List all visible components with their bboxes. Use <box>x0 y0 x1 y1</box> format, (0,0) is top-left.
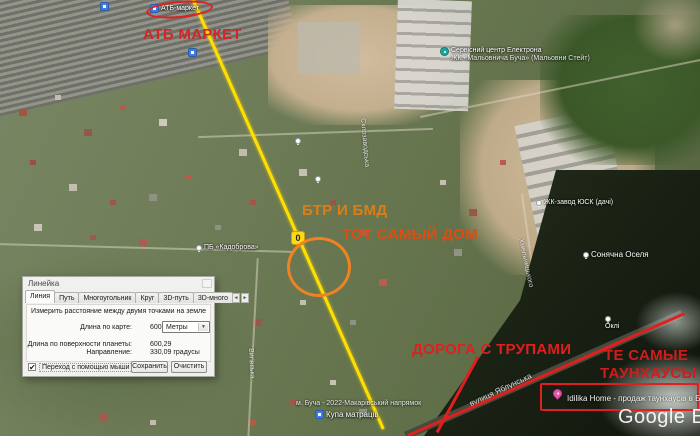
poi-label: Оклі <box>605 323 619 331</box>
tab-circle[interactable]: Круг <box>135 292 159 303</box>
ground-length-value: 600,29 <box>150 341 171 348</box>
shop-icon <box>315 410 324 419</box>
ground-length-label: Длина по поверхности планеты: <box>27 341 132 348</box>
poi-label: м. Буча - 2022-Макарівський напрямок <box>296 400 421 408</box>
map-pin-icon <box>315 176 321 182</box>
map-pin-icon <box>583 252 589 258</box>
poi-bucha-note: м. Буча - 2022-Макарівський напрямок <box>296 400 421 408</box>
poi-transit-station[interactable] <box>100 2 109 11</box>
idilika-placemark-label[interactable]: Idilika Home - продаж таунхаусів в Бучі <box>567 394 700 403</box>
annotation-atb-market: АТБ МАРКЕТ <box>143 26 242 43</box>
poi-label: ПБ «Кадоброва» <box>204 244 259 252</box>
google-earth-window: вулиця Яблунська Склозаводська Вигівська… <box>0 0 700 436</box>
mouse-nav-label[interactable]: Переход с помощью мыши <box>40 364 132 371</box>
tab-scroll-buttons: ◄ ► <box>232 293 249 303</box>
poi-label: ЖК-завод ЮСК (дачі) <box>544 199 613 207</box>
annotation-townhouses-line2: ТАУНХАУСЫ <box>600 365 696 382</box>
map-pin-icon <box>536 200 542 206</box>
heading-value: 330,09 градусы <box>150 349 200 356</box>
poi-pin[interactable] <box>315 176 321 182</box>
ruler-dialog-title: Линейка <box>28 279 59 288</box>
tab-3d-polygon[interactable]: 3D-много <box>193 292 233 303</box>
poi-okli[interactable]: Оклі <box>605 316 619 331</box>
map-pin-icon <box>605 316 611 322</box>
google-earth-watermark: Google Ea <box>618 406 700 429</box>
tab-path[interactable]: Путь <box>54 292 79 303</box>
poi-sonyachna-oselya[interactable]: Сонячна Оселя <box>583 251 649 259</box>
ruler-panel: Измерить расстояние между двумя точками … <box>26 304 211 362</box>
ruler-description: Измерить расстояние между двумя точками … <box>31 308 206 315</box>
save-button[interactable]: Сохранить <box>131 361 168 373</box>
tab-scroll-right-icon[interactable]: ► <box>241 293 249 303</box>
tab-scroll-left-icon[interactable]: ◄ <box>232 293 240 303</box>
heading-label: Направление: <box>27 349 132 356</box>
ruler-dialog: Линейка Линия Путь Многоугольник Круг 3D… <box>22 276 215 377</box>
field-area <box>635 0 700 60</box>
poi-transit-station-2[interactable] <box>188 48 197 57</box>
map-pin-icon <box>295 138 301 144</box>
transit-icon <box>188 48 197 57</box>
annotation-btr-bmd: БТР И БМД <box>302 202 387 219</box>
poi-mattresses[interactable]: Купа матраців <box>315 410 379 419</box>
annotation-townhouses-line1: ТЕ САМЫЕ <box>604 347 688 364</box>
poi-label: Сервісний центр Електрона <box>451 47 590 55</box>
poi-usk[interactable]: ЖК-завод ЮСК (дачі) <box>536 199 613 207</box>
poi-label: ЖК «Мальовнича Буча» (Мальовни Стейт) <box>451 55 590 63</box>
poi-label: Сонячна Оселя <box>591 251 649 259</box>
ruler-tab-bar: Линия Путь Многоугольник Круг 3D-путь 3D… <box>25 290 212 303</box>
tab-line[interactable]: Линия <box>25 290 55 303</box>
poi-pin[interactable] <box>295 138 301 144</box>
poi-kadobrova[interactable]: ПБ «Кадоброва» <box>196 244 259 252</box>
tab-polygon[interactable]: Многоугольник <box>78 292 136 303</box>
clear-button[interactable]: Очистить <box>171 361 207 373</box>
house-highlight-circle <box>287 237 351 297</box>
unit-selected-value: Метры <box>166 324 188 331</box>
poi-service-center[interactable]: Сервісний центр Електрона ЖК «Мальовнича… <box>440 47 590 63</box>
annotation-corpses-road: ДОРОГА С ТРУПАМИ <box>412 341 571 358</box>
close-button[interactable] <box>202 279 212 288</box>
service-icon <box>440 47 449 56</box>
map-pin-icon <box>196 245 202 251</box>
mouse-nav-checkbox[interactable]: ✔ <box>28 363 36 371</box>
tab-3d-path[interactable]: 3D-путь <box>158 292 193 303</box>
transit-icon <box>100 2 109 11</box>
map-length-label: Длина по карте: <box>27 324 132 331</box>
residential-houses <box>0 0 6 5</box>
chevron-down-icon: ▼ <box>198 323 208 331</box>
industrial-building <box>298 22 360 74</box>
unit-dropdown[interactable]: Метры ▼ <box>162 321 210 333</box>
poi-label: Купа матраців <box>326 411 379 419</box>
annotation-that-house: ТОТ САМЫЙ ДОМ <box>342 226 478 243</box>
